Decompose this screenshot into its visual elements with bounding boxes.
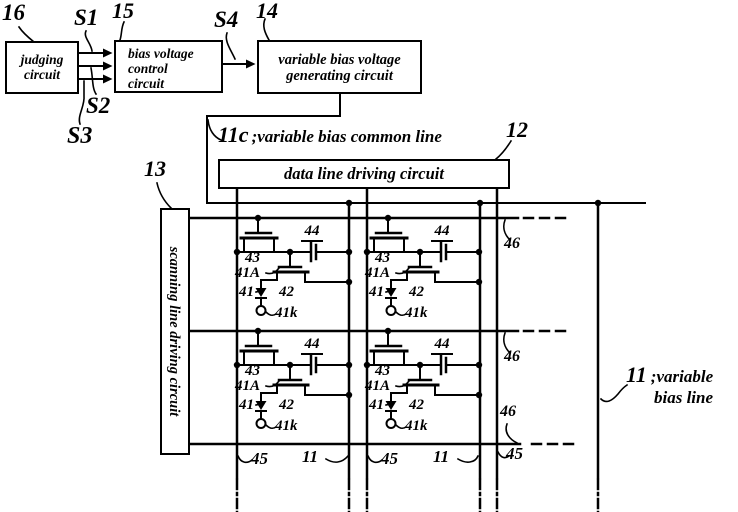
- ref-41-label: 41: [239, 398, 254, 413]
- ref-15-label: 15: [112, 0, 134, 22]
- ref-45-label: 45: [251, 450, 268, 467]
- ref-14-label: 14: [256, 0, 278, 22]
- ref-41k-label: 41k: [275, 419, 298, 434]
- ref-44-label: 44: [431, 224, 453, 242]
- signal-s2-label: S2: [86, 94, 110, 117]
- ref-16-label: 16: [2, 1, 25, 24]
- variable-bias-common-line-label: 11c;variable bias common line: [218, 124, 442, 146]
- ref-43-label: 43: [245, 364, 260, 379]
- ref-41A-label: 41A: [365, 379, 390, 394]
- patent-circuit-figure: judging circuit bias voltage control cir…: [0, 0, 738, 512]
- data-line-driving-circuit-label: data line driving circuit: [220, 161, 508, 187]
- scanning-line-dashes: [524, 218, 578, 444]
- bias-line-text2: bias line: [654, 389, 713, 406]
- ref-41A-label: 41A: [235, 379, 260, 394]
- ref-43-label: 43: [375, 251, 390, 266]
- ref-41k-label: 41k: [405, 419, 428, 434]
- ref-43-label: 43: [245, 251, 260, 266]
- ref-41-label: 41: [369, 398, 384, 413]
- ref-42-label: 42: [409, 285, 424, 300]
- signal-s3-label: S3: [67, 124, 92, 148]
- data-lines: [237, 188, 497, 478]
- ref-41k-label: 41k: [275, 306, 298, 321]
- bias-control-label-line2: control: [128, 61, 221, 76]
- ref-43-label: 43: [375, 364, 390, 379]
- bias-generator-label-line1: variable bias voltage: [259, 52, 420, 68]
- ref-45-label: 45: [506, 445, 523, 462]
- common-line-text: ;variable bias common line: [252, 127, 442, 146]
- scanning-line-driving-circuit-label: scanning line driving circuit: [160, 209, 188, 454]
- ref-11-bottom-label: 11: [433, 448, 449, 465]
- ref-41-label: 41: [369, 285, 384, 300]
- judging-circuit-label-line1: judging: [7, 52, 77, 67]
- bias-control-label-line1: bias voltage: [128, 46, 221, 61]
- ref-46-label: 46: [504, 349, 520, 365]
- signal-s1-label: S1: [74, 6, 98, 29]
- ref-12-label: 12: [506, 119, 528, 141]
- judging-circuit-box: judging circuit: [5, 41, 79, 94]
- ref-46-label: 46: [504, 236, 520, 252]
- ref-42-label: 42: [279, 285, 294, 300]
- judging-circuit-label-line2: circuit: [7, 67, 77, 82]
- bias-control-label-line3: circuit: [128, 76, 221, 91]
- ref-44-label: 44: [431, 337, 453, 355]
- ref-41A-label: 41A: [365, 266, 390, 281]
- ref-11: 11: [626, 362, 647, 387]
- bias-generator-label-line2: generating circuit: [259, 68, 420, 84]
- ref-42-label: 42: [409, 398, 424, 413]
- ref-41k-label: 41k: [405, 306, 428, 321]
- signal-s4-label: S4: [214, 8, 238, 31]
- ref-13-label: 13: [144, 158, 166, 180]
- ref-11-bottom-label: 11: [302, 448, 318, 465]
- line-continuations: [237, 480, 598, 512]
- ref-44-label: 44: [301, 337, 323, 355]
- ref-45-label: 45: [381, 450, 398, 467]
- variable-bias-lines: [349, 203, 598, 478]
- ref-44-label: 44: [301, 224, 323, 242]
- ref-11c: 11c: [218, 122, 249, 147]
- ref-41A-label: 41A: [235, 266, 260, 281]
- variable-bias-line-label: 11;variable bias line: [626, 364, 713, 406]
- ref-42-label: 42: [279, 398, 294, 413]
- ref-46-label: 46: [500, 404, 516, 420]
- variable-bias-generator-box: variable bias voltage generating circuit: [257, 40, 422, 94]
- bias-voltage-control-box: bias voltage control circuit: [114, 40, 223, 93]
- data-line-driving-circuit-box: data line driving circuit: [218, 159, 510, 189]
- ref-41-label: 41: [239, 285, 254, 300]
- bias-line-text1: ;variable: [651, 367, 713, 386]
